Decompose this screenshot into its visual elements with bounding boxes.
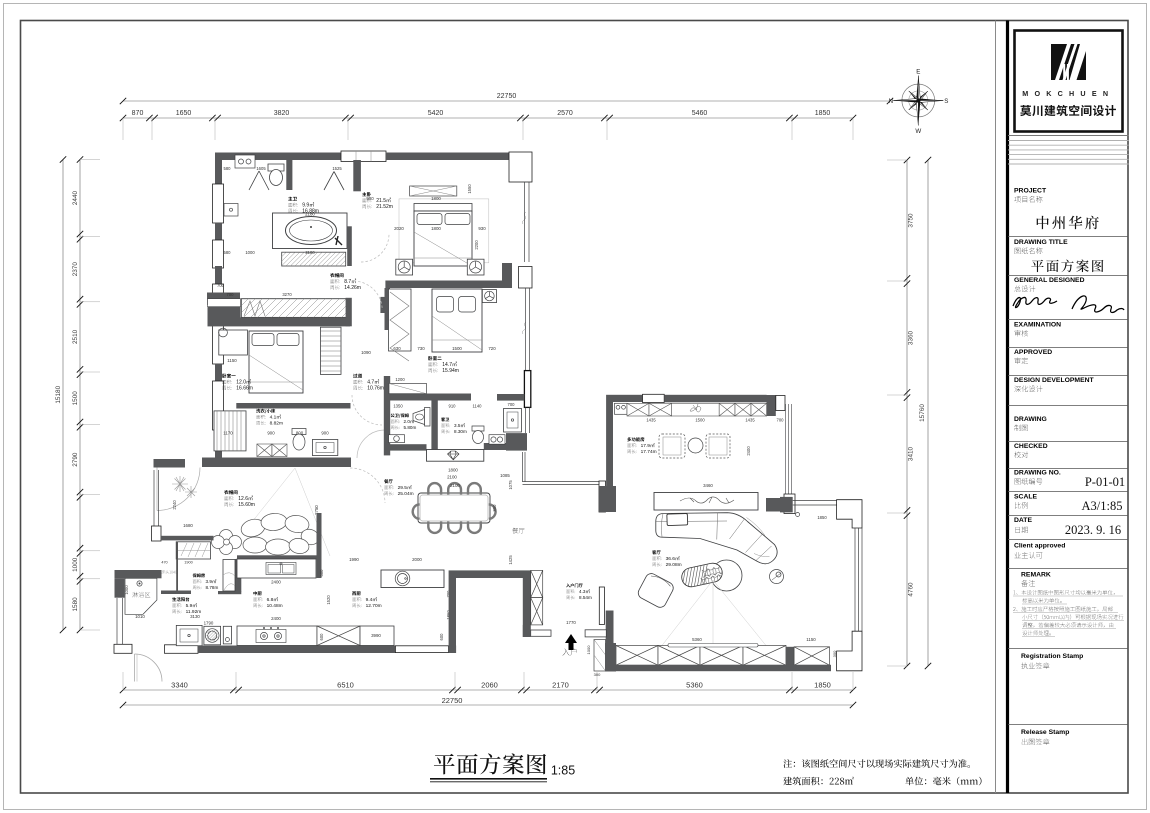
svg-text:21.52m: 21.52m (376, 204, 393, 210)
svg-text:730: 730 (417, 346, 425, 351)
svg-text:4.3㎡: 4.3㎡ (579, 588, 590, 594)
svg-text:700: 700 (227, 292, 235, 297)
svg-text:1800: 1800 (448, 468, 458, 473)
svg-text:CHECKED: CHECKED (1014, 443, 1048, 450)
svg-text:1790: 1790 (204, 621, 214, 626)
svg-text:DRAWING NO.: DRAWING NO. (1014, 470, 1061, 477)
svg-text:4.7㎡: 4.7㎡ (367, 379, 379, 386)
svg-text:36.6㎡: 36.6㎡ (666, 555, 680, 562)
svg-text:1680: 1680 (183, 523, 193, 528)
svg-text:930: 930 (478, 226, 486, 231)
svg-text:470: 470 (161, 561, 167, 565)
svg-text:900: 900 (267, 431, 275, 436)
svg-text:2200: 2200 (474, 240, 479, 250)
svg-text:2100: 2100 (450, 483, 460, 488)
svg-text:3.9㎡: 3.9㎡ (206, 578, 217, 584)
svg-text:1090: 1090 (361, 350, 371, 355)
svg-text:1:85: 1:85 (551, 764, 575, 778)
svg-text:720: 720 (488, 346, 496, 351)
svg-text:4.1㎡: 4.1㎡ (270, 414, 282, 421)
svg-text:1010: 1010 (135, 614, 145, 619)
svg-text:900: 900 (321, 431, 329, 436)
svg-text:1900: 1900 (184, 561, 192, 565)
svg-text:2000: 2000 (412, 557, 422, 562)
svg-text:600: 600 (439, 633, 444, 641)
svg-text:2180: 2180 (305, 212, 315, 217)
svg-text:2170: 2170 (552, 681, 569, 690)
svg-text:4760: 4760 (908, 582, 915, 597)
svg-text:1525: 1525 (332, 166, 342, 171)
svg-text:Registration Stamp: Registration Stamp (1021, 653, 1083, 660)
svg-text:1170: 1170 (223, 431, 233, 436)
svg-text:1000: 1000 (72, 557, 79, 572)
svg-text:S: S (944, 98, 948, 105)
svg-text:2180: 2180 (305, 250, 315, 255)
svg-text:1850: 1850 (815, 110, 831, 117)
svg-text:22750: 22750 (442, 696, 463, 705)
svg-text:6510: 6510 (337, 681, 354, 690)
svg-text:1150: 1150 (227, 358, 237, 363)
svg-text:REMARK: REMARK (1021, 572, 1051, 579)
svg-text:8.82m: 8.82m (270, 421, 283, 427)
svg-text:29.5㎡: 29.5㎡ (398, 484, 412, 491)
svg-text:3340: 3340 (171, 681, 188, 690)
svg-text:5460: 5460 (692, 110, 708, 117)
svg-text:DATE: DATE (1014, 517, 1032, 524)
svg-text:1605: 1605 (256, 166, 266, 171)
svg-text:8.30m: 8.30m (454, 429, 467, 434)
svg-text:1990: 1990 (349, 557, 359, 562)
svg-text:W: W (915, 128, 921, 135)
svg-text:14.26m: 14.26m (344, 285, 361, 291)
svg-text:GENERAL DESIGNED: GENERAL DESIGNED (1014, 277, 1085, 284)
svg-text:9.4㎡: 9.4㎡ (366, 596, 378, 603)
svg-text:2570: 2570 (557, 110, 573, 117)
svg-text:5.9㎡: 5.9㎡ (186, 602, 198, 609)
svg-text:SCALE: SCALE (1014, 494, 1038, 501)
svg-text:2510: 2510 (72, 329, 79, 344)
svg-text:12.70m: 12.70m (366, 603, 382, 609)
svg-text:900: 900 (366, 196, 374, 201)
svg-text:21.5㎡: 21.5㎡ (376, 197, 391, 204)
svg-text:700: 700 (508, 402, 516, 407)
svg-text:15760: 15760 (919, 404, 926, 422)
svg-text:700: 700 (777, 418, 785, 423)
svg-text:P-01-01: P-01-01 (1085, 475, 1125, 489)
svg-text:2790: 2790 (72, 452, 79, 467)
svg-text:3130: 3130 (190, 614, 200, 619)
svg-text:16.66m: 16.66m (236, 386, 253, 392)
svg-text:Release Stamp: Release Stamp (1021, 729, 1069, 736)
svg-text:E: E (916, 69, 920, 76)
svg-text:29.08m: 29.08m (666, 562, 682, 568)
svg-text:5360: 5360 (692, 637, 702, 642)
svg-text:1425: 1425 (508, 555, 513, 565)
svg-text:1800: 1800 (431, 226, 441, 231)
svg-text:630: 630 (393, 346, 401, 351)
svg-text:10.76m: 10.76m (367, 386, 384, 392)
svg-text:MOKCHUEN: MOKCHUEN (1022, 89, 1114, 98)
svg-text:8.7㎡: 8.7㎡ (344, 278, 356, 285)
svg-text:2370: 2370 (72, 262, 79, 277)
svg-text:14.7㎡: 14.7㎡ (442, 361, 457, 368)
svg-text:1000: 1000 (586, 645, 591, 655)
svg-text:3990: 3990 (371, 633, 381, 638)
svg-text:1075: 1075 (508, 480, 513, 490)
svg-text:1140: 1140 (472, 404, 482, 409)
svg-text:1800: 1800 (431, 196, 441, 201)
svg-text:EXAMINATION: EXAMINATION (1014, 322, 1061, 329)
svg-text:580: 580 (224, 250, 232, 255)
svg-text:12.6㎡: 12.6㎡ (238, 495, 253, 502)
svg-text:1000: 1000 (124, 585, 129, 595)
svg-text:800: 800 (296, 431, 304, 436)
svg-text:25.04m: 25.04m (398, 491, 414, 497)
svg-text:1085: 1085 (500, 473, 510, 478)
svg-text:10.48m: 10.48m (267, 603, 283, 609)
svg-text:APPROVED: APPROVED (1014, 349, 1052, 356)
svg-text:1435: 1435 (745, 418, 755, 423)
svg-text:300: 300 (832, 650, 837, 657)
svg-text:2440: 2440 (72, 190, 79, 205)
svg-text:600: 600 (319, 633, 324, 641)
svg-text:8.78m: 8.78m (206, 585, 219, 590)
svg-text:580: 580 (224, 166, 232, 171)
svg-text:2020: 2020 (394, 226, 404, 231)
svg-text:700: 700 (217, 283, 225, 288)
svg-text:9.9㎡: 9.9㎡ (302, 202, 314, 209)
svg-text:5360: 5360 (686, 681, 703, 690)
svg-text:12.0㎡: 12.0㎡ (236, 379, 251, 386)
svg-text:1500: 1500 (72, 391, 79, 406)
svg-text:22750: 22750 (497, 93, 517, 100)
svg-text:6.8㎡: 6.8㎡ (267, 596, 279, 603)
svg-text:1000: 1000 (245, 250, 255, 255)
svg-text:8.54m: 8.54m (579, 595, 592, 600)
svg-text:17.9㎡: 17.9㎡ (641, 442, 655, 449)
svg-text:3270: 3270 (282, 292, 292, 297)
svg-text:600: 600 (319, 569, 324, 577)
svg-text:DRAWING TITLE: DRAWING TITLE (1014, 239, 1068, 246)
svg-text:3360: 3360 (908, 330, 915, 345)
svg-text:1350: 1350 (393, 404, 403, 409)
svg-text:A3/1:85: A3/1:85 (1082, 499, 1123, 513)
svg-text:1850: 1850 (817, 515, 827, 520)
svg-text:850: 850 (492, 504, 497, 512)
svg-text:1650: 1650 (176, 110, 192, 117)
svg-text:3460: 3460 (703, 483, 713, 488)
svg-text:2023. 9. 16: 2023. 9. 16 (1065, 523, 1121, 537)
svg-text:910: 910 (449, 404, 457, 409)
svg-text:300: 300 (594, 672, 601, 677)
svg-text:3750: 3750 (908, 213, 915, 228)
svg-text:3.5㎡: 3.5㎡ (454, 422, 465, 428)
svg-text:5420: 5420 (428, 110, 444, 117)
svg-text:1550: 1550 (467, 184, 472, 194)
svg-text:15.60m: 15.60m (238, 502, 255, 508)
svg-text:15180: 15180 (55, 385, 62, 403)
svg-text:1435: 1435 (646, 418, 656, 423)
svg-text:PROJECT: PROJECT (1014, 188, 1047, 195)
svg-text:1500: 1500 (452, 346, 462, 351)
svg-text:DRAWING: DRAWING (1014, 416, 1047, 423)
svg-text:1500: 1500 (695, 418, 705, 423)
svg-text:17.74m: 17.74m (641, 449, 657, 455)
svg-text:1770: 1770 (566, 620, 576, 625)
svg-text:2400: 2400 (271, 580, 281, 585)
svg-text:2400: 2400 (746, 446, 751, 456)
svg-text:DESIGN DEVELOPMENT: DESIGN DEVELOPMENT (1014, 377, 1095, 384)
svg-text:870: 870 (132, 110, 144, 117)
svg-text:1850: 1850 (814, 681, 831, 690)
svg-text:2240: 2240 (172, 500, 177, 510)
svg-text:Client approved: Client approved (1014, 543, 1065, 550)
svg-text:3410: 3410 (908, 446, 915, 461)
svg-text:5.80m: 5.80m (404, 425, 417, 430)
svg-text:3820: 3820 (274, 110, 290, 117)
svg-text:1150: 1150 (806, 637, 816, 642)
svg-text:2400: 2400 (271, 616, 281, 621)
svg-text:1200: 1200 (395, 377, 405, 382)
svg-text:1520: 1520 (326, 595, 331, 605)
svg-text:15.94m: 15.94m (442, 368, 459, 374)
svg-text:2060: 2060 (481, 681, 498, 690)
svg-text:2100: 2100 (447, 475, 457, 480)
svg-text:1580: 1580 (72, 597, 79, 612)
